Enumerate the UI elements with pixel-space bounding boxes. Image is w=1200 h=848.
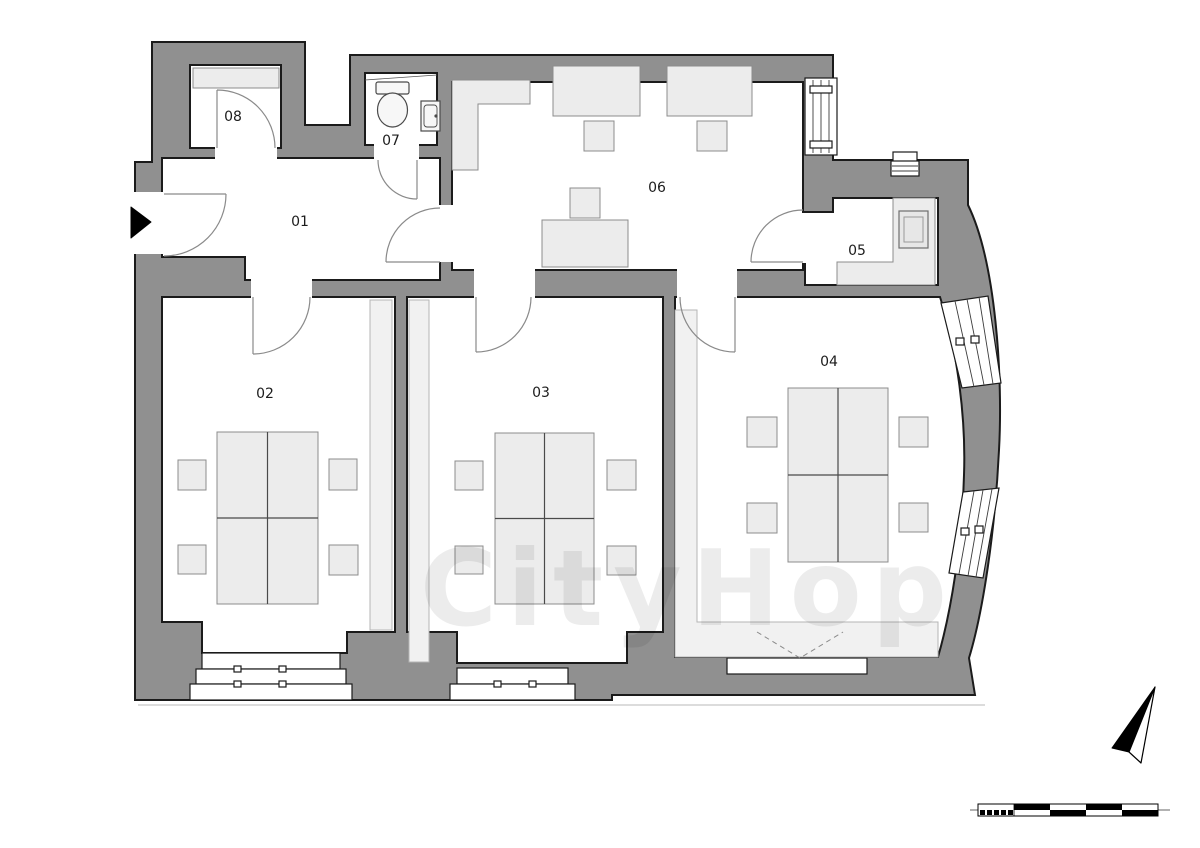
chair-06-1 [584,121,614,151]
table-02 [217,432,318,604]
north-arrow-icon [1112,687,1155,763]
door-opening-08 [215,146,277,161]
door-opening-03 [474,268,535,299]
table-06-left [553,66,640,116]
chair-02-2 [178,545,206,574]
chair-06-3 [570,188,600,218]
toilet-icon [376,82,409,127]
chair-06-2 [697,121,727,151]
door-opening-01-06 [438,205,454,262]
room-01-label: 01 [291,214,309,230]
window-05-north [891,152,919,176]
wardrobe-02 [370,300,392,630]
chair-04-3 [899,417,928,447]
door-opening-05 [797,213,809,263]
room-02-label: 02 [256,386,274,402]
window-03 [450,668,575,700]
room-06-label: 06 [648,180,666,196]
chair-02-3 [329,459,357,490]
chair-04-1 [747,417,777,447]
room-08-label: 08 [224,109,242,125]
scale-bar [970,804,1170,816]
sink-icon [421,101,440,131]
window-02 [190,653,352,700]
chair-03-1 [455,461,483,490]
shelf-08 [193,68,279,88]
room-05-label: 05 [848,243,866,259]
room-04-label: 04 [820,354,838,370]
window-06-east [805,78,837,155]
chair-02-1 [178,460,206,490]
door-opening-04 [677,268,737,299]
floor-plan-canvas: CityHop 01 02 03 04 05 06 07 08 [0,0,1200,848]
chair-02-4 [329,545,358,575]
room-07-label: 07 [382,133,400,149]
watermark-text: CityHop [420,528,957,650]
door-opening-02 [251,277,312,299]
floor-plan-page: CityHop 01 02 03 04 05 06 07 08 [0,0,1200,848]
desk-06 [542,220,628,267]
chair-03-3 [607,460,636,490]
room-03-label: 03 [532,385,550,401]
table-06-right [667,66,752,116]
